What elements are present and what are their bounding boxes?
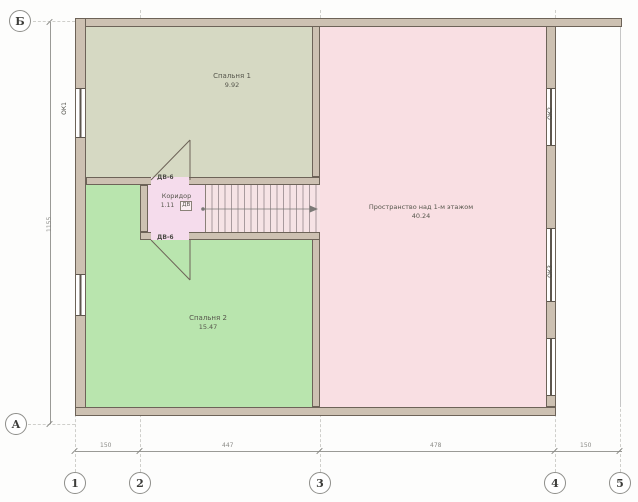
grid-bubble-label: 3: [316, 477, 324, 490]
grid-bubble-label: А: [12, 418, 21, 431]
grid-bubble-row-B: Б: [9, 10, 31, 32]
grid-axis-line-B: [33, 21, 75, 22]
wall-corridor-left: [140, 185, 148, 232]
room-label-bedroom2: Спальня 2 15.47: [146, 314, 270, 332]
dimension-value-1-2: 150: [100, 442, 111, 449]
grid-bubble-col-2: 2: [129, 472, 151, 494]
dimension-value-3-4: 478: [430, 442, 441, 449]
room-name: Спальня 2: [146, 314, 270, 323]
dimension-value-4-5: 150: [580, 442, 591, 449]
room-name: Спальня 1: [170, 72, 294, 81]
window-label-right-2: ОК3: [547, 265, 554, 278]
room-area: 1.11: [161, 202, 174, 210]
room-label-bedroom1: Спальня 1 9.92: [170, 72, 294, 90]
grid-bubble-col-4: 4: [544, 472, 566, 494]
wall-exterior-left: [75, 18, 86, 416]
window-left-1: [76, 88, 85, 138]
room-area: 9.92: [170, 81, 294, 90]
staircase: [205, 185, 320, 232]
room-name: Коридор: [148, 192, 205, 201]
window-left-2: [76, 274, 85, 316]
door-label-bottom: ДВ-6: [157, 234, 174, 241]
door-tag: ДВ: [180, 201, 192, 211]
grid-bubble-col-5: 5: [609, 472, 631, 494]
wall-interior-vertical-lower: [312, 232, 320, 407]
dimension-line-bottom: [75, 451, 622, 452]
grid-bubble-row-A: А: [5, 413, 27, 435]
grid-bubble-label: 5: [616, 477, 624, 490]
room-bedroom2-strip: [86, 185, 140, 240]
window-right-3: [547, 338, 555, 396]
grid-axis-line-A: [28, 424, 75, 425]
dimension-value-2-3: 447: [222, 442, 233, 449]
dimension-value-left: 1155: [46, 217, 53, 232]
roof-edge-line: [620, 27, 621, 407]
wall-exterior-bottom: [75, 407, 556, 416]
grid-bubble-label: 4: [551, 477, 559, 490]
window-label-right-1: ОК2: [547, 107, 554, 120]
floor-plan-canvas: Спальня 1 9.92 Спальня 2 15.47 Пространс…: [0, 0, 638, 502]
wall-interior-vertical-upper: [312, 26, 320, 177]
grid-bubble-col-3: 3: [309, 472, 331, 494]
wall-interior-horizontal-top: [86, 177, 320, 185]
room-name: Пространство над 1-м этажом: [356, 203, 486, 212]
door-label-top: ДВ-6: [157, 174, 174, 181]
room-area: 15.47: [146, 323, 270, 332]
window-label-left-1: ОК1: [61, 102, 68, 115]
room-bedroom1: [86, 26, 312, 177]
room-label-corridor: Коридор 1.11 ДВ: [148, 192, 205, 211]
grid-bubble-label: 2: [136, 477, 144, 490]
grid-bubble-label: Б: [15, 15, 24, 28]
room-label-open-space: Пространство над 1-м этажом 40.24: [356, 203, 486, 221]
room-area: 40.24: [356, 212, 486, 221]
grid-bubble-label: 1: [71, 477, 79, 490]
grid-bubble-col-1: 1: [64, 472, 86, 494]
wall-exterior-top: [75, 18, 622, 27]
